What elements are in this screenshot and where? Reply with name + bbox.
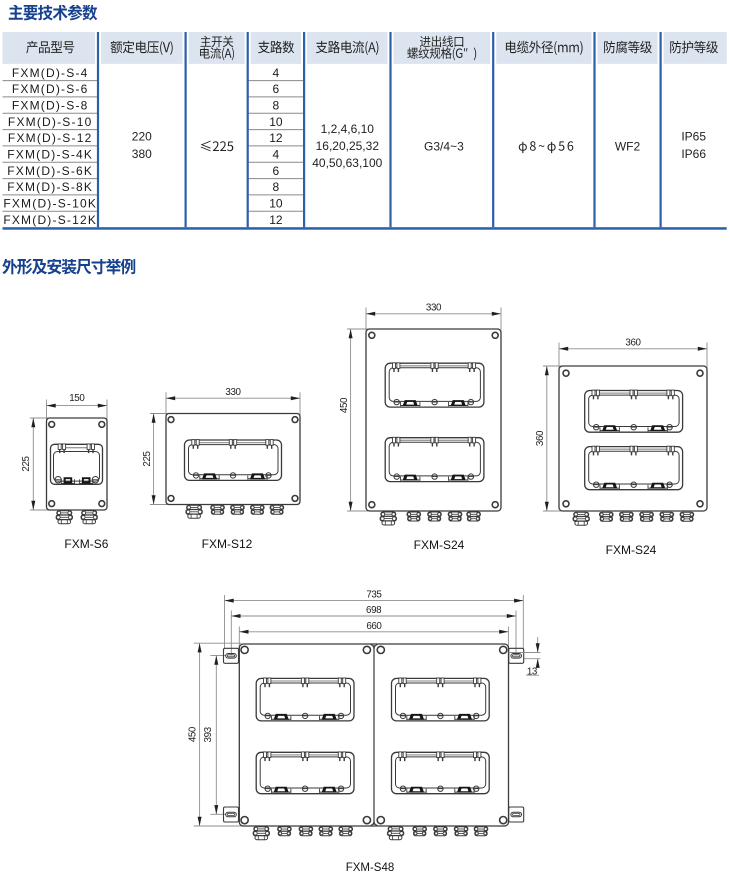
svg-text:380: 380 (132, 147, 152, 161)
svg-text:IP66: IP66 (681, 147, 706, 161)
svg-text:360: 360 (535, 430, 546, 446)
svg-text:16,20,25,32: 16,20,25,32 (316, 139, 380, 153)
svg-text:330: 330 (426, 303, 442, 314)
svg-text:450: 450 (339, 397, 350, 413)
svg-text:225: 225 (142, 450, 153, 466)
svg-text:393: 393 (203, 726, 214, 742)
svg-text:698: 698 (366, 605, 382, 616)
svg-text:6: 6 (273, 82, 280, 96)
svg-text:FXM(D)-S-8K: FXM(D)-S-8K (7, 180, 93, 194)
svg-text:10: 10 (269, 197, 283, 211)
svg-text:450: 450 (188, 726, 199, 742)
svg-text:FXM(D)-S-12K: FXM(D)-S-12K (3, 213, 97, 227)
svg-text:8: 8 (273, 99, 280, 113)
svg-text:FXM(D)-S-4: FXM(D)-S-4 (12, 66, 89, 80)
svg-text:4: 4 (273, 66, 280, 80)
svg-text:FXM(D)-S-10: FXM(D)-S-10 (8, 115, 93, 129)
svg-text:8: 8 (273, 180, 280, 194)
svg-text:40,50,63,100: 40,50,63,100 (312, 156, 382, 170)
svg-text:IP65: IP65 (681, 129, 706, 143)
svg-text:FXM(D)-S-6: FXM(D)-S-6 (12, 82, 89, 96)
svg-text:FXM(D)-S-6K: FXM(D)-S-6K (7, 164, 93, 178)
svg-text:660: 660 (366, 621, 382, 632)
svg-text:12: 12 (269, 213, 283, 227)
svg-text:FXM(D)-S-10K: FXM(D)-S-10K (3, 197, 97, 211)
svg-text:WF2: WF2 (615, 139, 641, 153)
svg-text:FXM(D)-S-8: FXM(D)-S-8 (12, 99, 89, 113)
svg-text:6: 6 (273, 164, 280, 178)
svg-text:1,2,4,6,10: 1,2,4,6,10 (321, 122, 375, 136)
svg-text:360: 360 (625, 338, 641, 349)
svg-text:330: 330 (225, 387, 241, 398)
svg-text:10: 10 (269, 115, 283, 129)
svg-text:FXM(D)-S-12: FXM(D)-S-12 (8, 131, 93, 145)
svg-text:FXM(D)-S-4K: FXM(D)-S-4K (7, 148, 93, 162)
svg-text:150: 150 (69, 393, 85, 404)
svg-text:4: 4 (273, 148, 280, 162)
svg-text:220: 220 (132, 129, 152, 143)
svg-text:225: 225 (21, 455, 32, 471)
svg-text:735: 735 (366, 590, 382, 601)
svg-text:12: 12 (269, 131, 283, 145)
svg-text:G3/4~3: G3/4~3 (424, 139, 464, 153)
